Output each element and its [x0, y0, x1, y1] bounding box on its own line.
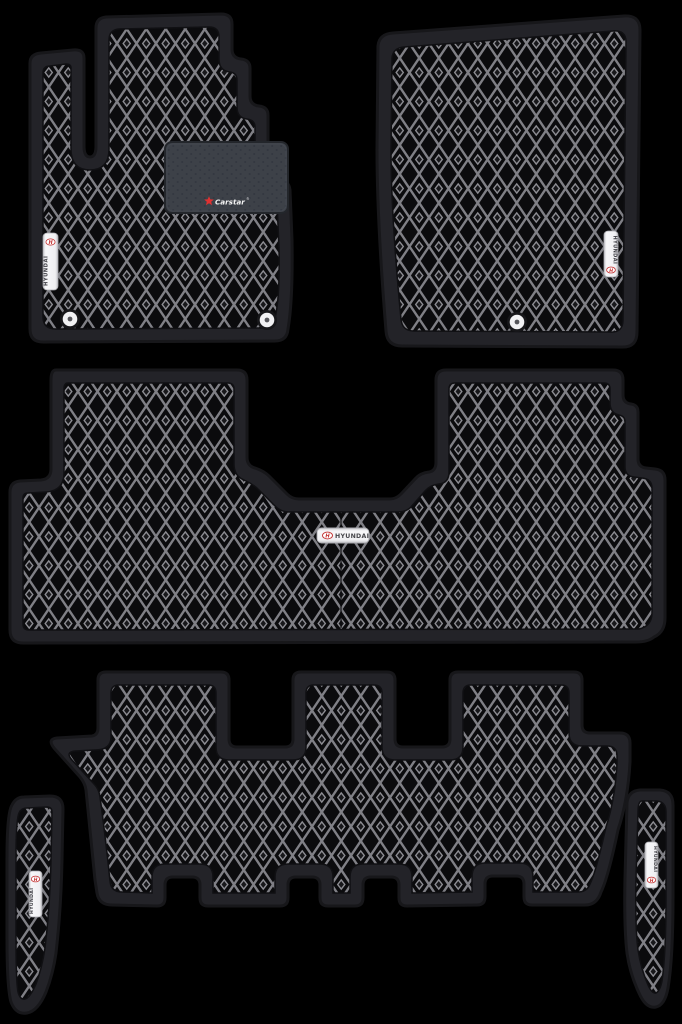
hyundai-label: H HYUNDAI: [43, 233, 58, 290]
fastener-grommet: [257, 310, 277, 330]
mat-set-illustration: Carstar ® H HYUNDAI HYUNDAI: [0, 0, 682, 1024]
svg-text:H: H: [34, 877, 38, 883]
hyundai-label-text: HYUNDAI: [611, 236, 617, 265]
right-side-mat-surface: [636, 801, 666, 993]
carstar-registered-mark: ®: [246, 197, 250, 201]
heel-pad: Carstar ®: [165, 142, 288, 213]
svg-text:H: H: [609, 268, 613, 274]
hyundai-label: H HYUNDAI: [29, 871, 42, 917]
third-row-mat-surface: [69, 685, 617, 893]
product-photo-canvas: Carstar ® H HYUNDAI HYUNDAI: [0, 0, 682, 1024]
second-row-mat: H HYUNDAI: [10, 370, 665, 643]
right-rear-side-mat: HYUNDAI H: [625, 790, 673, 1007]
carstar-text: Carstar: [215, 198, 245, 207]
fastener-grommet: [507, 312, 527, 332]
hyundai-label-text: HYUNDAI: [29, 888, 35, 914]
third-row-mat: [51, 672, 630, 906]
svg-text:H: H: [325, 534, 330, 540]
driver-front-mat: Carstar ® H HYUNDAI: [30, 14, 292, 342]
passenger-mat-surface: [391, 31, 626, 332]
fastener-grommet: [60, 309, 80, 329]
hyundai-badge: H HYUNDAI: [317, 528, 369, 543]
passenger-front-mat: HYUNDAI H: [377, 16, 640, 347]
hyundai-label: HYUNDAI H: [645, 842, 658, 888]
hyundai-label-text: HYUNDAI: [44, 256, 50, 286]
hyundai-badge-text: HYUNDAI: [335, 533, 369, 540]
hyundai-label-text: HYUNDAI: [652, 846, 658, 872]
hyundai-label: HYUNDAI H: [604, 231, 618, 277]
svg-text:H: H: [49, 240, 53, 246]
svg-text:H: H: [650, 878, 654, 884]
left-rear-side-mat: H HYUNDAI: [7, 796, 63, 1013]
